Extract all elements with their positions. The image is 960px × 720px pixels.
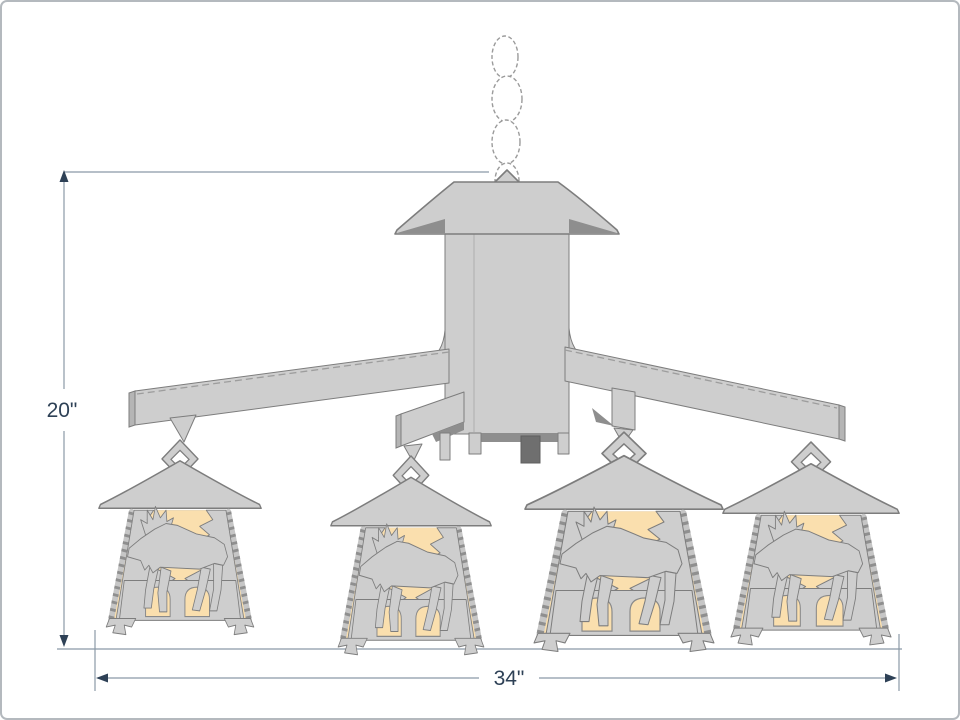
support-arm-right-outer — [565, 347, 845, 441]
bottom-finial — [521, 436, 540, 463]
lantern-3 — [525, 432, 723, 651]
dimension-arrow — [885, 674, 897, 683]
arm-end-cap — [396, 414, 401, 448]
lantern-2 — [331, 456, 491, 655]
support-arm-left-inner — [396, 392, 464, 462]
height-dimension-label: 20" — [47, 399, 78, 422]
column-base — [440, 433, 569, 463]
lantern-1 — [99, 440, 261, 635]
dimension-arrow — [60, 635, 69, 647]
diagram-frame: 20" — [0, 0, 960, 720]
width-dimension: 34" — [95, 630, 899, 691]
arm-hook — [170, 415, 196, 442]
width-dimension-label: 34" — [494, 667, 525, 690]
lantern-4 — [723, 442, 899, 645]
chandelier-diagram: 20" — [2, 2, 958, 718]
arm-end-cap — [839, 405, 845, 441]
dimension-arrow — [96, 674, 108, 683]
canopy-roof — [395, 182, 619, 234]
arm-end-cap — [129, 391, 135, 427]
